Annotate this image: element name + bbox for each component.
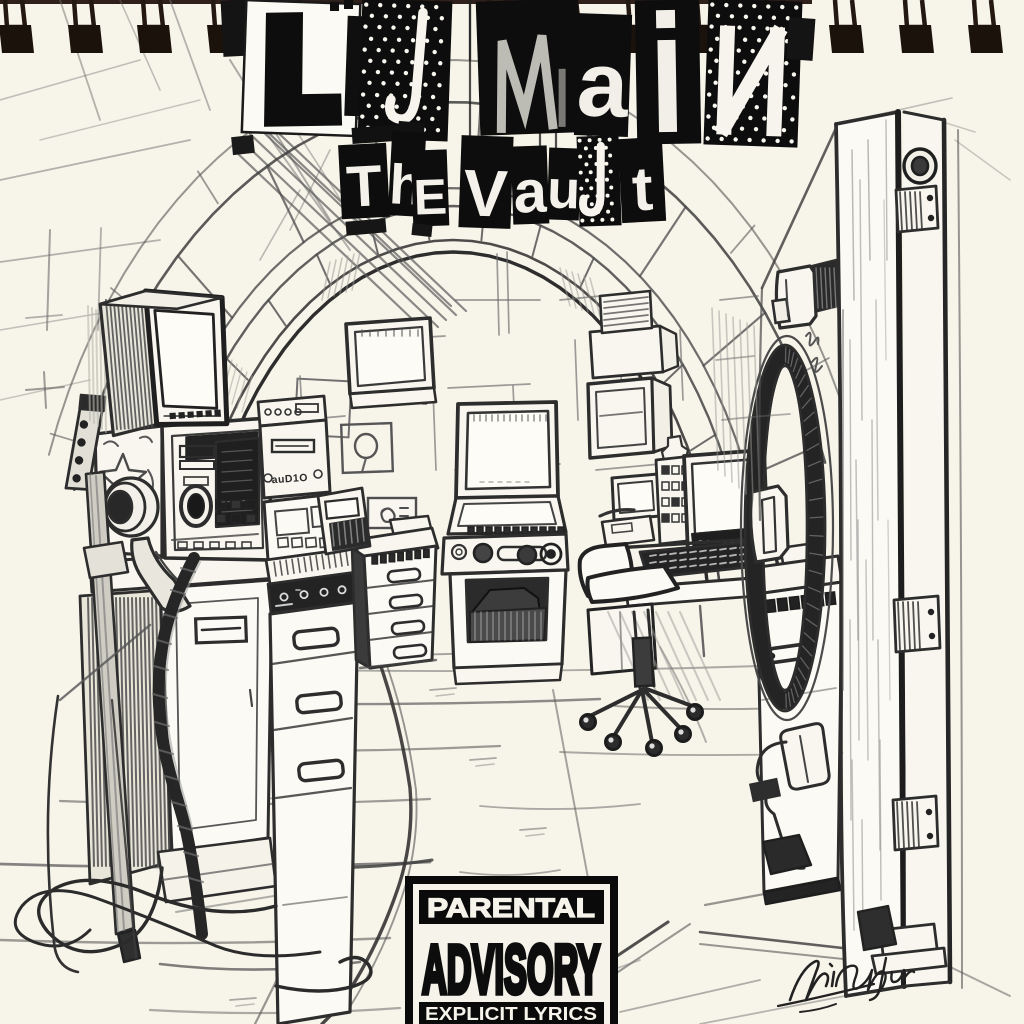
svg-text:T: T [345, 153, 384, 220]
svg-text:auD1O: auD1O [271, 472, 308, 487]
svg-text:E: E [413, 168, 448, 225]
svg-text:EXPLICIT LYRICS: EXPLICIT LYRICS [425, 1004, 597, 1024]
svg-text:PARENTAL: PARENTAL [427, 893, 595, 923]
svg-text:a: a [512, 157, 548, 225]
svg-text:t: t [630, 154, 654, 224]
svg-text:ADVISORY: ADVISORY [422, 932, 600, 1008]
svg-text:a: a [575, 33, 631, 137]
svg-text:u: u [546, 159, 581, 220]
svg-text:V: V [462, 155, 509, 230]
